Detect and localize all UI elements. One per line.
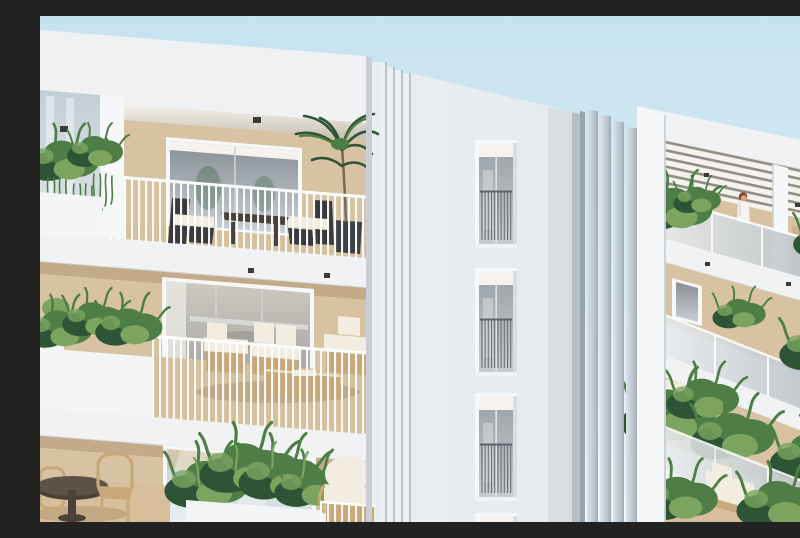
building-corner-edge <box>366 56 372 522</box>
ceiling-spotlight <box>705 262 710 266</box>
ceiling-spotlight <box>795 203 800 207</box>
tower-window-2 <box>475 268 517 376</box>
tower-window-4 <box>475 513 517 522</box>
corner-fins <box>580 110 637 522</box>
tower-window-3 <box>475 393 517 501</box>
right-wing <box>621 106 800 522</box>
ceiling-spotlight <box>248 268 254 273</box>
planter-front <box>40 348 153 419</box>
ceiling-spotlight <box>704 173 709 177</box>
second-balcony <box>40 262 374 438</box>
corner-pier <box>637 106 665 522</box>
ceiling-spotlight <box>253 117 261 123</box>
left-building <box>40 30 378 522</box>
architectural-render <box>40 16 800 522</box>
tower-window-1 <box>475 140 517 248</box>
central-tower <box>372 62 580 522</box>
tower-edge <box>572 112 580 522</box>
render-canvas <box>40 16 800 522</box>
wing-window-glass <box>676 282 698 322</box>
ceiling-spotlight <box>324 273 330 278</box>
ceiling-spotlight <box>786 282 791 286</box>
wall-pier <box>100 95 124 238</box>
top-balcony <box>106 104 378 261</box>
